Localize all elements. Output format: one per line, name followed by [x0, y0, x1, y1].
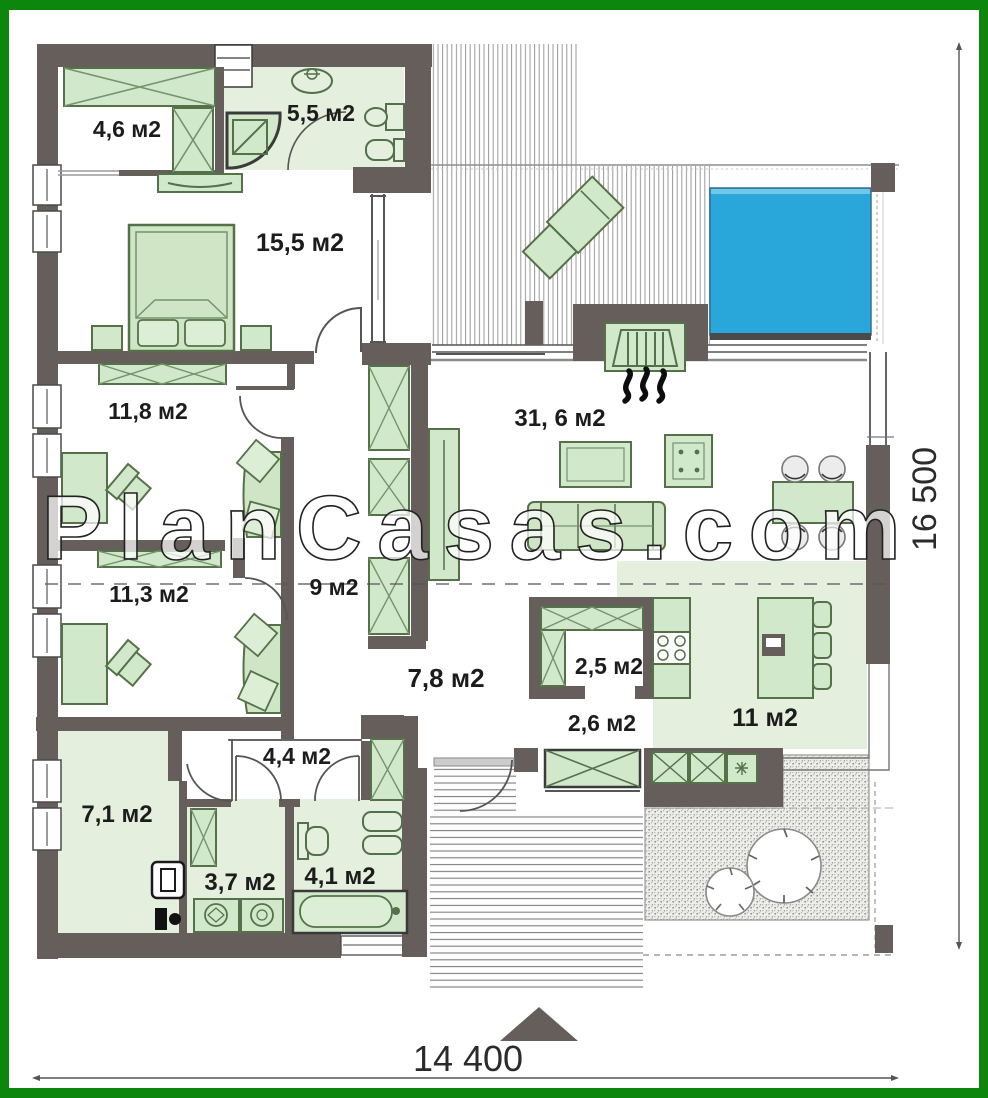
svg-text:4,4 м2: 4,4 м2: [263, 743, 331, 769]
svg-text:4,6 м2: 4,6 м2: [93, 116, 161, 142]
svg-text:7,8 м2: 7,8 м2: [407, 663, 484, 693]
svg-text:11,3 м2: 11,3 м2: [109, 581, 189, 607]
svg-text:5,5 м2: 5,5 м2: [287, 100, 355, 126]
svg-text:15,5 м2: 15,5 м2: [256, 229, 344, 257]
svg-text:31, 6 м2: 31, 6 м2: [514, 405, 605, 432]
svg-text:PlanCasas.com: PlanCasas.com: [42, 478, 916, 579]
svg-text:9 м2: 9 м2: [310, 574, 359, 600]
svg-text:14 400: 14 400: [413, 1038, 523, 1079]
svg-text:2,6 м2: 2,6 м2: [568, 710, 636, 736]
svg-text:2,5 м2: 2,5 м2: [575, 653, 643, 679]
svg-text:3,7 м2: 3,7 м2: [204, 869, 275, 896]
svg-text:11,8 м2: 11,8 м2: [108, 398, 188, 424]
svg-text:7,1 м2: 7,1 м2: [81, 801, 152, 828]
svg-text:16 500: 16 500: [906, 447, 944, 551]
svg-text:4,1 м2: 4,1 м2: [304, 863, 375, 890]
svg-text:11 м2: 11 м2: [732, 704, 798, 732]
